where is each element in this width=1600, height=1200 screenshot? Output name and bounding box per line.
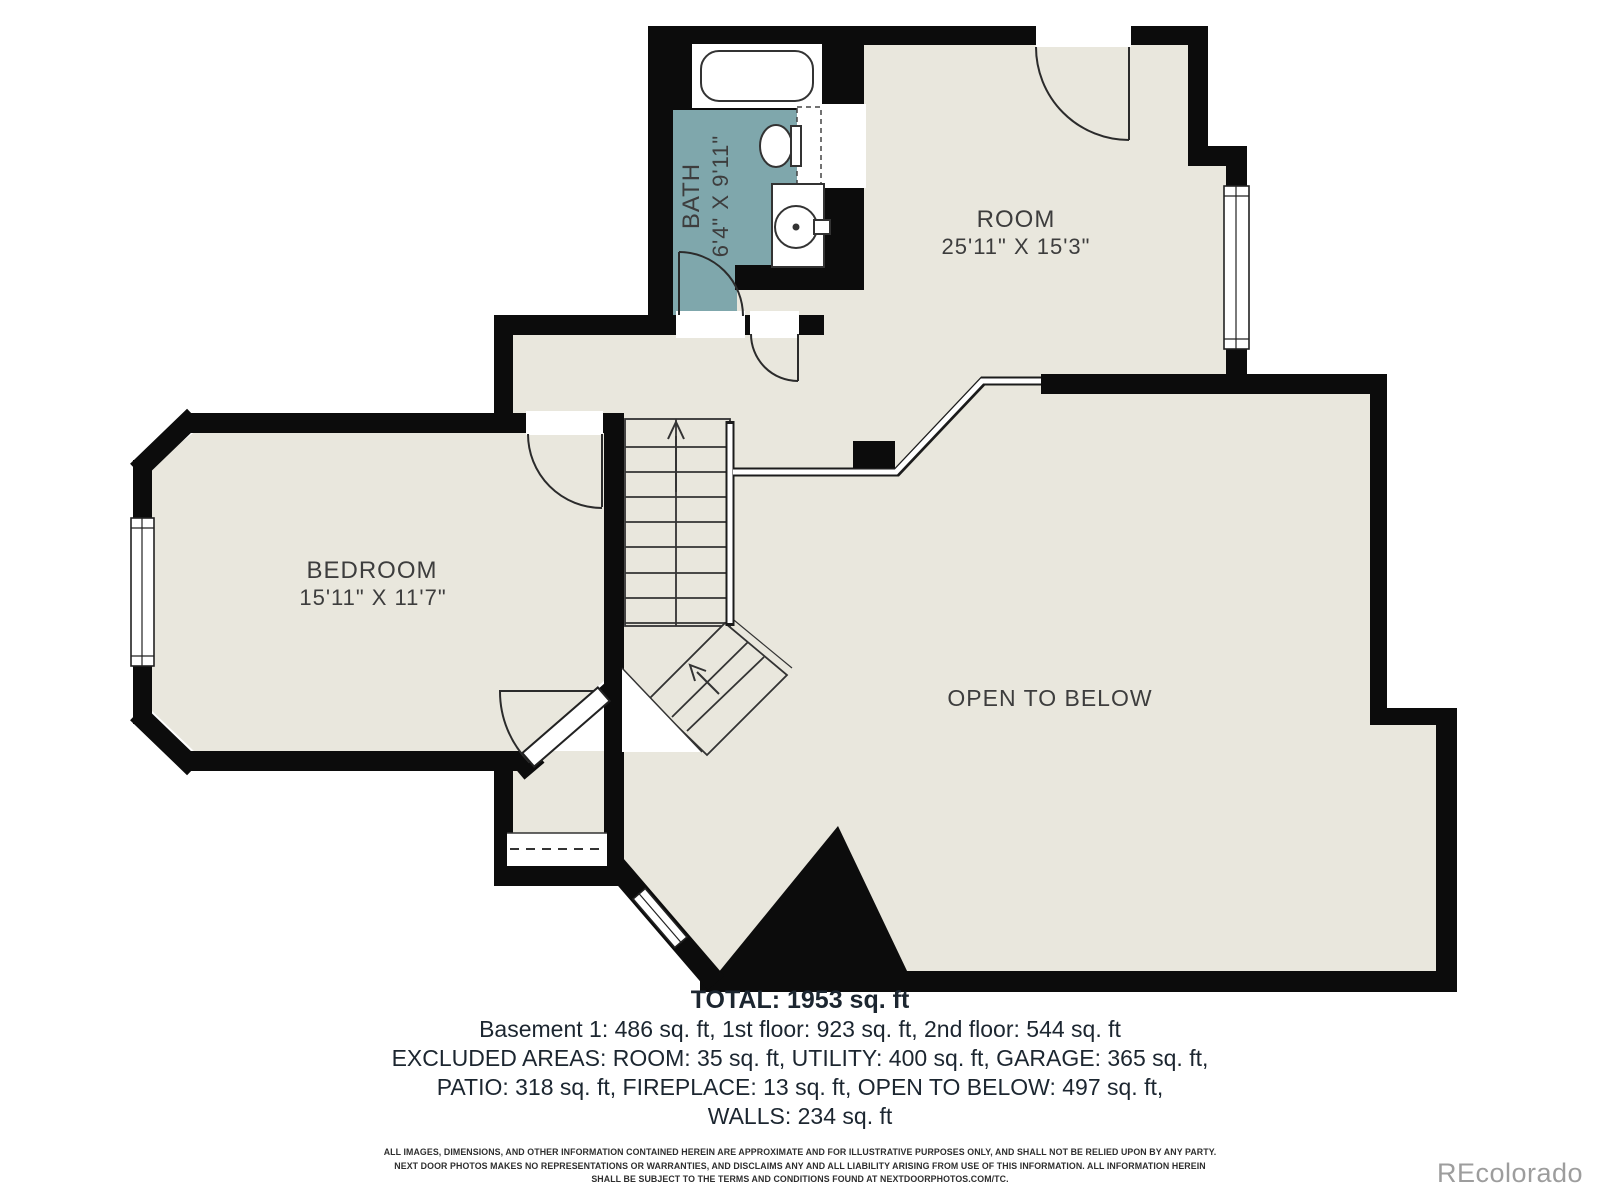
bath-label: BATH [678,163,705,229]
bedroom-label: BEDROOM [306,557,437,584]
closet [507,833,607,866]
sink-drain-icon [793,224,800,231]
wall-bath-left [648,26,673,335]
disclaimer-line-2: NEXT DOOR PHOTOS MAKES NO REPRESENTATION… [0,1160,1600,1174]
excluded-areas-line-2: PATIO: 318 sq. ft, FIREPLACE: 13 sq. ft,… [0,1073,1600,1102]
wall-closet-bottom [494,864,624,886]
pocket-door-opening [820,104,866,188]
disclaimer-line-3: SHALL BE SUBJECT TO THE TERMS AND CONDIT… [0,1173,1600,1187]
recolorado-watermark: REcolorado [1437,1158,1600,1189]
area-summary: TOTAL: 1953 sq. ft Basement 1: 486 sq. f… [0,986,1600,1131]
fireplace [853,441,895,468]
bedroom-window [131,518,154,666]
hall-door-opening [750,311,799,338]
bath-dims: 6'4" X 9'11" [708,135,733,257]
toilet-tank-icon [791,126,801,166]
total-area: TOTAL: 1953 sq. ft [0,986,1600,1015]
walls-area-line: WALLS: 234 sq. ft [0,1102,1600,1131]
wall-stairs-left [604,413,624,886]
bath-door-opening [676,311,745,338]
bedroom-dims: 15'11" X 11'7" [299,585,446,610]
floor-areas-line: Basement 1: 486 sq. ft, 1st floor: 923 s… [0,1015,1600,1044]
room-dims: 25'11" X 15'3" [942,234,1091,259]
room-window [1224,186,1249,349]
wall-bedroom-bottom [183,751,532,771]
sink-faucet-icon [814,220,830,234]
wall-open-right-upper [1370,374,1387,724]
bedroom-door-opening [526,411,603,435]
open-to-below-label: OPEN TO BELOW [947,685,1152,711]
wall-bath-bottom-right [735,265,824,290]
toilet-bowl-icon [760,125,792,167]
room-door-opening [1036,24,1131,47]
disclaimer-line-1: ALL IMAGES, DIMENSIONS, AND OTHER INFORM… [0,1146,1600,1160]
room-label: ROOM [977,206,1056,233]
excluded-areas-line-1: EXCLUDED AREAS: ROOM: 35 sq. ft, UTILITY… [0,1044,1600,1073]
disclaimer: ALL IMAGES, DIMENSIONS, AND OTHER INFORM… [0,1146,1600,1187]
wall-room-right-upper [1188,26,1208,165]
wall-open-top [1041,374,1387,394]
wall-open-right-lower [1436,708,1457,992]
bathtub-icon [701,51,813,101]
